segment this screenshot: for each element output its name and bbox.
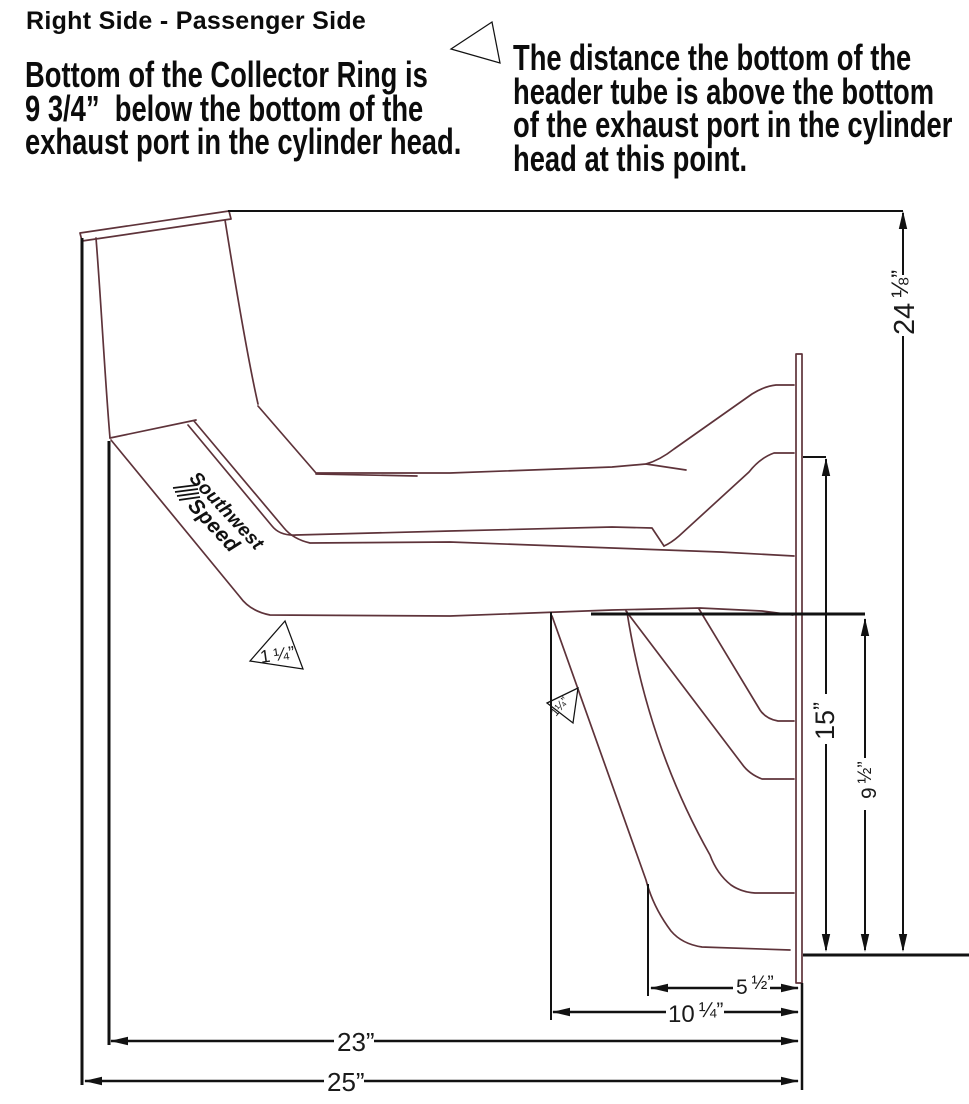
- svg-text:5 ½”: 5 ½”: [736, 973, 774, 999]
- svg-text:10 ¼”: 10 ¼”: [668, 999, 723, 1028]
- svg-text:25”: 25”: [327, 1067, 365, 1097]
- svg-text:1 ¼”: 1 ¼”: [259, 642, 296, 667]
- svg-text:15”: 15”: [809, 702, 840, 740]
- svg-text:23”: 23”: [337, 1027, 375, 1057]
- svg-text:24 ⅛”: 24 ⅛”: [887, 270, 921, 335]
- svg-text:9 ½”: 9 ½”: [855, 761, 881, 799]
